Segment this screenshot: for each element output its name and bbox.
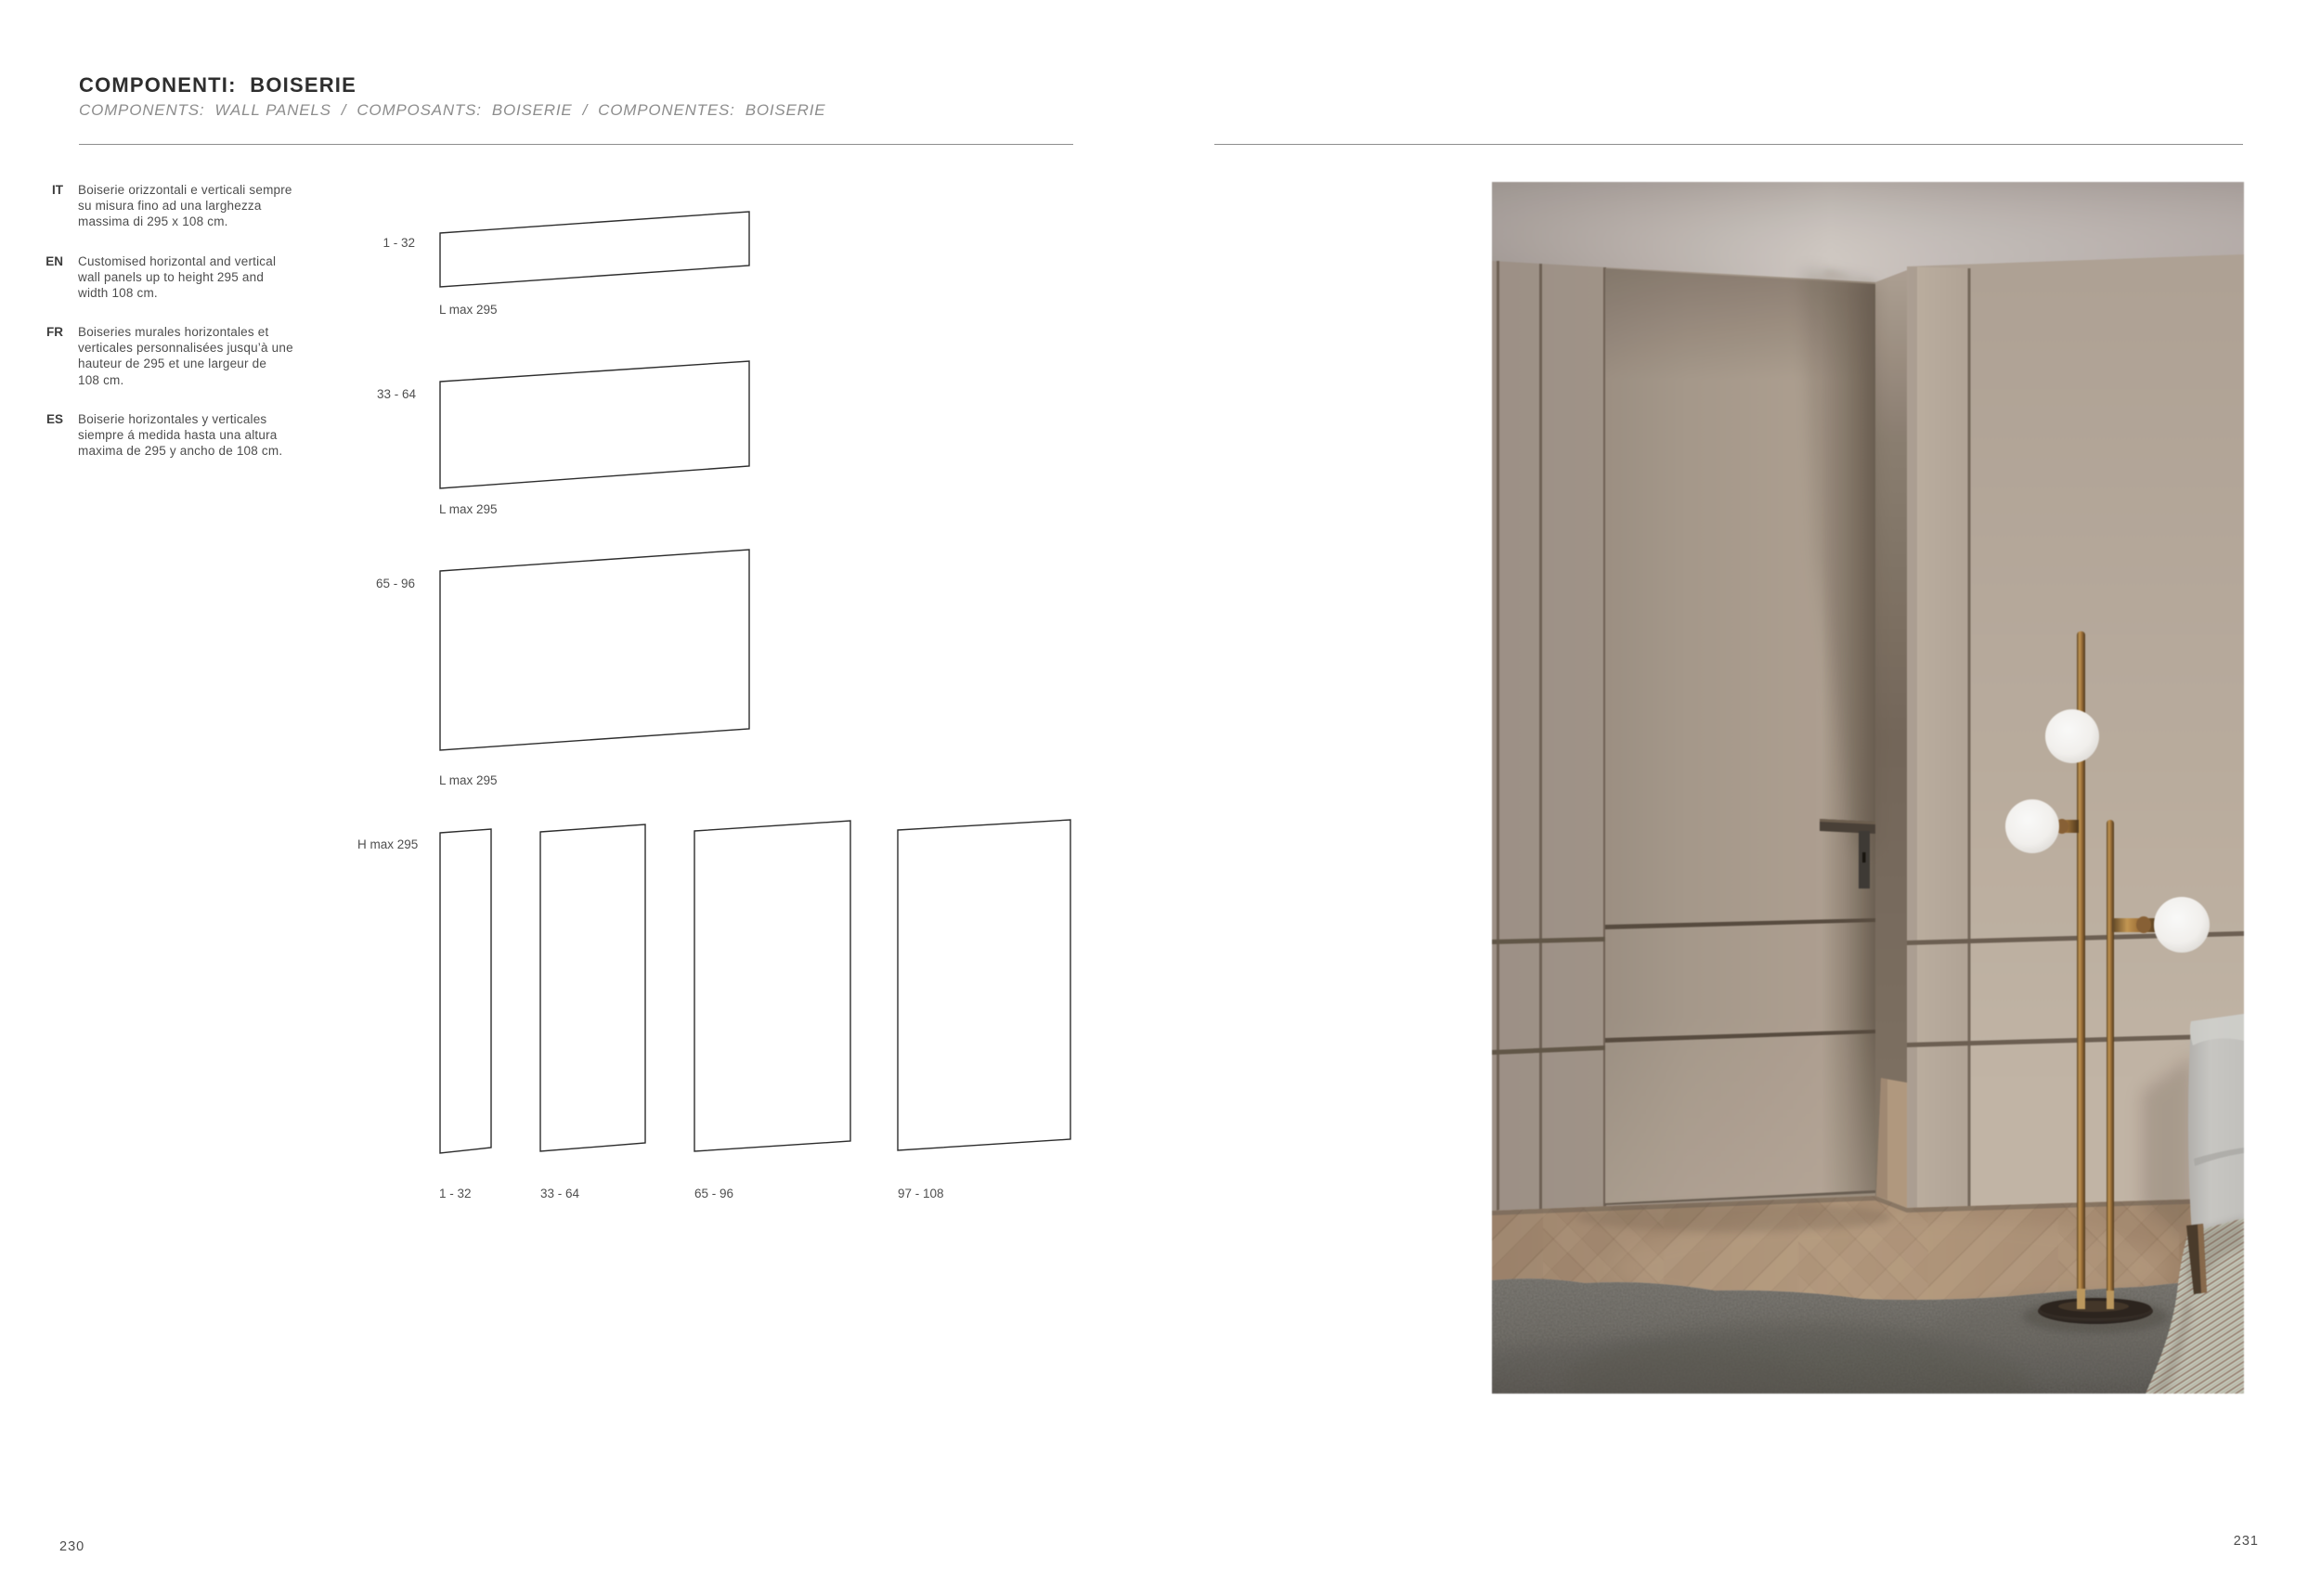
svg-text:33 - 64: 33 - 64	[377, 387, 417, 401]
svg-text:65 - 96: 65 - 96	[694, 1187, 733, 1200]
svg-text:L max 295: L max 295	[439, 502, 498, 516]
svg-text:33 - 64: 33 - 64	[540, 1187, 580, 1200]
svg-text:65 - 96: 65 - 96	[376, 577, 415, 590]
svg-text:L max 295: L max 295	[439, 773, 498, 787]
svg-text:L max 295: L max 295	[439, 303, 498, 317]
svg-text:1 - 32: 1 - 32	[439, 1187, 472, 1200]
svg-text:97 - 108: 97 - 108	[898, 1187, 944, 1200]
svg-text:H max 295: H max 295	[357, 837, 418, 851]
svg-text:1 - 32: 1 - 32	[383, 236, 415, 250]
